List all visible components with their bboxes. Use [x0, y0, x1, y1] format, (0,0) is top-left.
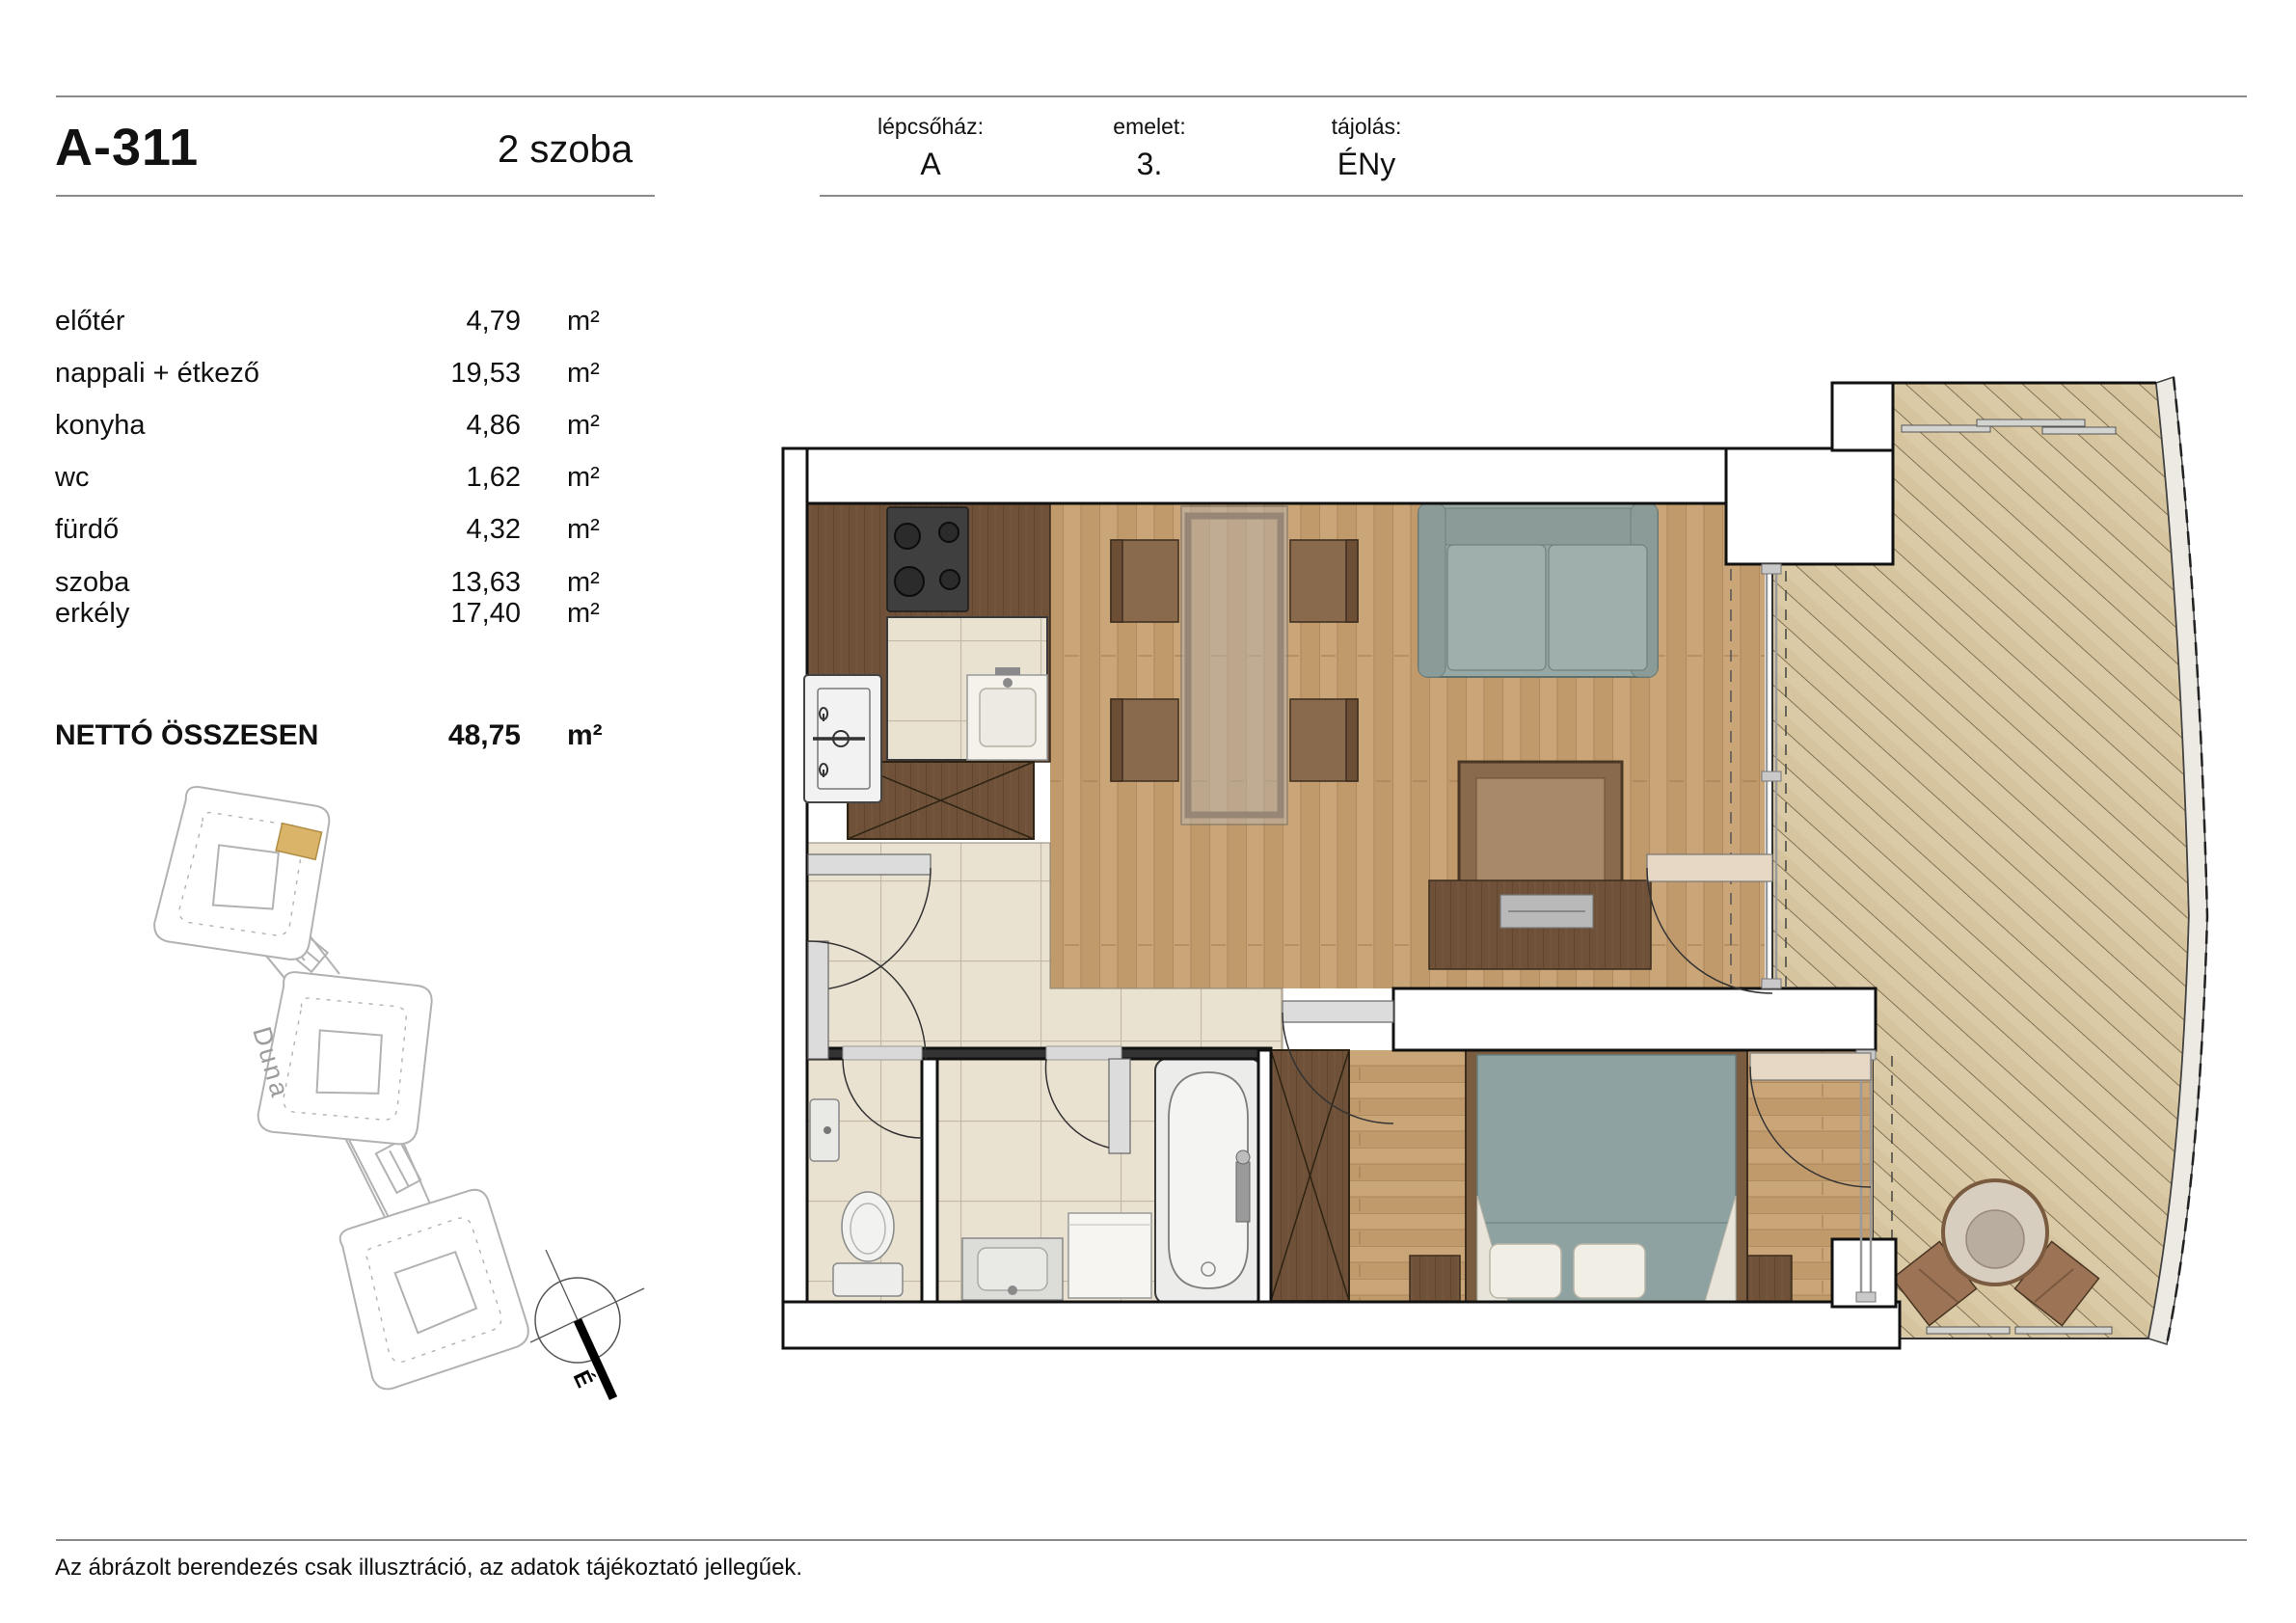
wall-bath-bedroom: [1258, 1050, 1271, 1302]
bathtub-icon: [1155, 1059, 1261, 1304]
wardrobe-icon: [1271, 1050, 1349, 1301]
wall-pillar: [1726, 448, 1893, 564]
wall-wc-bath: [922, 1059, 937, 1302]
washing-machine-icon: [1068, 1213, 1151, 1298]
dining-table: [1181, 506, 1287, 825]
nightstand-icon: [1742, 1256, 1792, 1302]
cooktop-icon: [887, 507, 968, 611]
sideboard-icon: [1429, 880, 1651, 969]
entry-door-icon: [804, 675, 881, 802]
site-building-3: [335, 1185, 535, 1393]
wall-top: [783, 448, 1726, 503]
plan-graphics: Duna É: [0, 0, 2296, 1623]
wall-left: [783, 448, 807, 1348]
site-plan: Duna: [151, 776, 534, 1393]
nightstand-icon: [1410, 1256, 1460, 1302]
floorplan-sheet: A-311 2 szoba lépcsőház: A emelet: 3. tá…: [0, 0, 2296, 1623]
site-building-1: [151, 776, 340, 973]
north-letter: É: [568, 1366, 599, 1392]
sofa-icon: [1418, 503, 1658, 677]
wall-bottom: [783, 1302, 1900, 1348]
bedroom: [1271, 1043, 1792, 1302]
bed-icon: [1466, 1043, 1747, 1302]
floor-plan: [783, 377, 2207, 1348]
balcony-table: [1943, 1180, 2047, 1285]
kitchen-sink-icon: [967, 667, 1047, 760]
north-compass: É: [530, 1250, 644, 1398]
wall-pillar: [1832, 383, 1893, 450]
vanity-sink-icon: [962, 1238, 1063, 1300]
wall-living-bedroom: [1393, 988, 1876, 1050]
